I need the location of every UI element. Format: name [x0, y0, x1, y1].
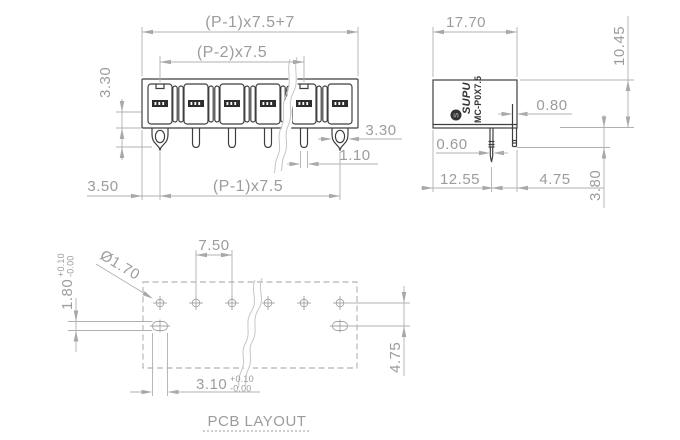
dim-hole-pitch: 7.50 [196, 237, 232, 296]
front-view: (P-1)x7.5+7 (P-2)x7.5 3.30 [87, 14, 402, 200]
keying-notch [300, 84, 308, 89]
dim-label: 7.50 [198, 237, 229, 254]
pin-hole [225, 296, 239, 310]
solder-pin [265, 128, 272, 148]
dim-label: 4.75 [539, 171, 570, 188]
brand-block: S SUPU MC-P0X7.5 [451, 76, 484, 123]
dim-peg-thickness: 0.60 [436, 136, 508, 155]
dim-label: 1.80 [59, 279, 76, 310]
peg-slot [330, 320, 350, 333]
dim-label: 0.60 [436, 136, 467, 153]
tolerance-plus: +0.10 [230, 374, 254, 384]
solder-pin [193, 128, 200, 148]
technical-drawing-page: (P-1)x7.5+7 (P-2)x7.5 3.30 [0, 0, 680, 440]
dim-label: 10.45 [611, 26, 628, 66]
break-line [238, 278, 262, 388]
pin-hole [261, 296, 275, 310]
dim-label: (P-1)x7.5+7 [205, 14, 295, 31]
side-anchor-peg [489, 128, 495, 162]
break-line [274, 57, 297, 173]
drawing-canvas: (P-1)x7.5+7 (P-2)x7.5 3.30 [0, 0, 680, 440]
peg-slot [150, 320, 170, 333]
keying-notch [156, 84, 164, 89]
dim-inner-pitch: (P-2)x7.5 [160, 44, 304, 82]
side-solder-pin [513, 128, 517, 147]
dim-label: 3.10 [196, 376, 227, 393]
dim-label: 3.80 [587, 170, 604, 201]
dim-label: 4.75 [387, 342, 404, 373]
logo-letter: S [452, 112, 461, 118]
pin-hole [189, 296, 203, 310]
dim-hole-diameter: Ø1.70 [96, 247, 154, 301]
tolerance-plus: +0.10 [56, 253, 66, 277]
dim-label: 12.55 [440, 171, 480, 188]
tolerance-minus: -0.00 [230, 384, 252, 394]
dim-depth: 17.70 [433, 14, 517, 77]
side-view: S SUPU MC-P0X7.5 17.70 10.45 [421, 14, 634, 208]
dim-slot-width: 3.10 +0.10 -0.00 [130, 333, 260, 396]
pcb-layout: 7.50 Ø1.70 1.80 +0.10 -0.00 [56, 237, 410, 431]
dim-label: 1.10 [339, 147, 370, 164]
pin-hole [153, 296, 167, 310]
dim-body-height: 3.30 [97, 67, 152, 160]
dim-label: (P-2)x7.5 [197, 44, 267, 61]
dim-label: (P-1)x7.5 [213, 178, 283, 195]
dim-label: 3.30 [365, 122, 396, 139]
page-title: PCB LAYOUT [208, 413, 307, 430]
anchor-pin [152, 128, 168, 150]
dim-left-margin-and-pin-span: 3.50 (P-1)x7.5 [87, 130, 340, 200]
dim-label: 3.50 [87, 178, 118, 195]
dim-label: 17.70 [446, 14, 486, 31]
pcb-layout-title: PCB LAYOUT [203, 413, 311, 431]
dim-row-spacing: 4.75 [344, 286, 410, 376]
pin-hole [297, 296, 311, 310]
dim-label: 0.80 [536, 97, 567, 114]
solder-pin [301, 128, 308, 148]
dim-anchor-pin-width: 3.30 [318, 122, 402, 141]
tolerance-minus: -0.00 [66, 255, 76, 277]
dim-pin-length: 3.80 [517, 115, 610, 208]
solder-pin [229, 128, 236, 148]
dim-pin-thickness: 0.80 [498, 97, 572, 116]
dim-label: 3.30 [97, 67, 114, 98]
brand-name: SUPU [461, 81, 473, 114]
model-number: MC-P0X7.5 [473, 76, 483, 123]
dim-pin-width: 1.10 [287, 147, 378, 168]
